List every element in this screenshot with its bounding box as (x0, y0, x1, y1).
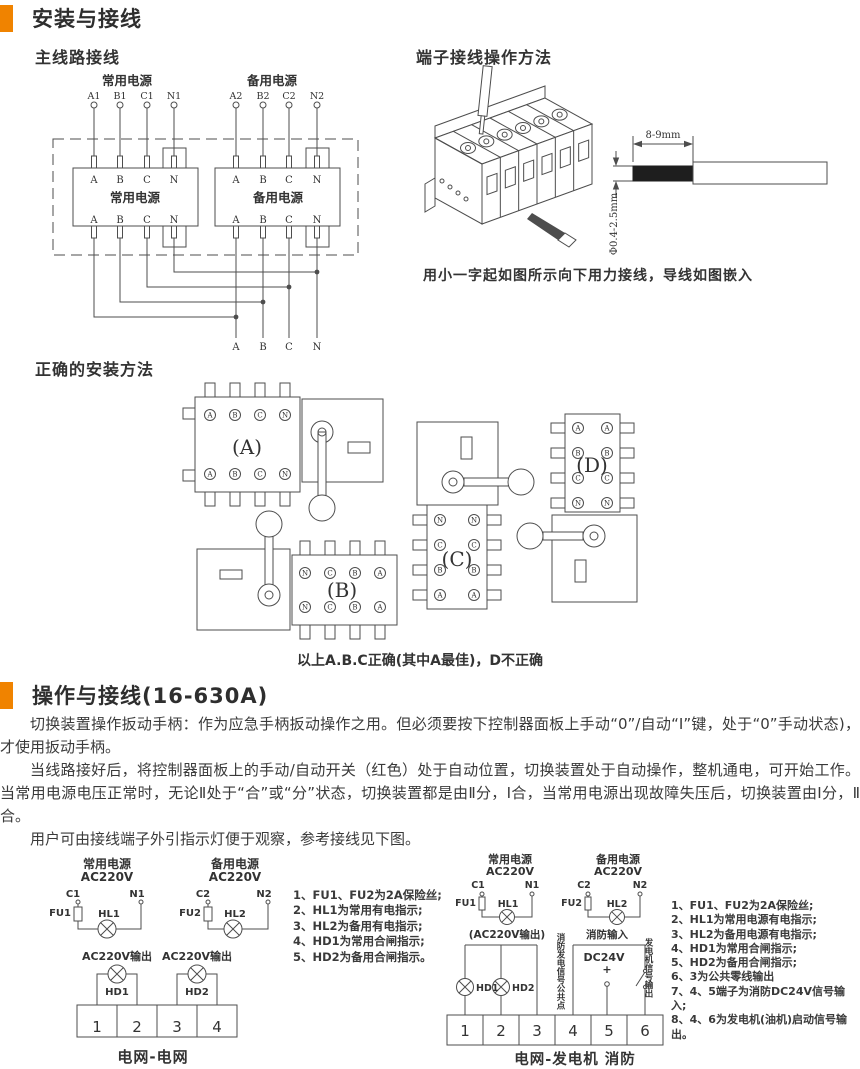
normal-power-label: 常用电源 (488, 852, 532, 866)
paragraph: 切换装置操作扳动手柄：作为应急手柄扳动操作之用。但必须要按下控制器面板上手动“0… (0, 713, 860, 759)
svg-text:C1: C1 (66, 889, 80, 900)
svg-text:B: B (259, 175, 266, 186)
normal-power-label: 常用电源 (102, 73, 153, 88)
svg-text:B1: B1 (113, 91, 126, 102)
note-line: 2、HL1为常用有电指示; (293, 903, 442, 918)
note-line: 5、HD2为备用合闸指示; (671, 956, 860, 970)
svg-text:N: N (604, 500, 610, 508)
diagram-caption: 电网-电网 (117, 1048, 188, 1066)
svg-text:C2: C2 (196, 889, 210, 900)
note-line: 2、HL1为常用电源有电指示; (671, 913, 860, 927)
normal-box-label: 常用电源 (110, 190, 161, 205)
svg-text:3: 3 (532, 1022, 542, 1040)
backup-box-label: 备用电源 (252, 190, 304, 205)
variant-d: A B C N A B C N (D) (517, 414, 637, 602)
handle-ball (309, 495, 335, 521)
ac-output-label: AC220V输出 (162, 949, 232, 963)
svg-text:B: B (116, 215, 123, 226)
svg-text:A: A (206, 471, 213, 479)
installation-caption: 以上A.B.C正确(其中A最佳)，D不正确 (170, 650, 670, 670)
variant-c: N C B A N C B A (C) (413, 422, 534, 609)
indicator-circuit-backup: C2 N2 FU2 HL2 (179, 889, 272, 938)
svg-text:A: A (231, 342, 240, 353)
svg-text:B: B (232, 471, 237, 479)
svg-text:A1: A1 (87, 91, 101, 102)
fire-input-label: 消防输入 (586, 928, 628, 941)
svg-text:N: N (313, 175, 322, 186)
wire-insulation (693, 162, 827, 184)
terminal-method-caption: 用小一字起如图所示向下用力接线，导线如图嵌入 (423, 265, 753, 285)
variant-a-label: (A) (232, 435, 262, 459)
note-line: 1、FU1、FU2为2A保险丝; (671, 899, 860, 913)
grid-grid-diagram: 常用电源 AC220V 备用电源 AC220V C1 N1 FU1 HL1 C2… (25, 845, 275, 1069)
top-terminal-labels: A1 B1 C1 N1 A2 B2 C2 N2 (87, 91, 325, 102)
closing-indicators: HD1 HD2 (97, 965, 217, 1005)
installation-variants-diagram: A B C N A B C N (A) (170, 380, 670, 646)
svg-text:C: C (285, 175, 293, 186)
svg-text:HD1: HD1 (476, 983, 498, 994)
svg-text:C: C (143, 175, 151, 186)
svg-text:N: N (170, 175, 179, 186)
fire-common-label: 消防发电信号公共点 (555, 932, 566, 1010)
svg-text:N1: N1 (167, 91, 181, 102)
handle-shaft (543, 532, 583, 540)
voltage-label: AC220V (594, 865, 643, 878)
note-line: 8、4、6为发电机(油机)启动信号输出。 (671, 1013, 860, 1042)
terminal-method-title: 端子接线操作方法 (416, 44, 552, 68)
svg-text:5: 5 (604, 1022, 614, 1040)
variant-b-label: (B) (327, 578, 357, 602)
note-line: 3、HL2为备用有电指示; (293, 919, 442, 934)
svg-text:N: N (471, 517, 477, 525)
stripped-conductor (633, 166, 693, 181)
output-bus-wires (94, 238, 319, 338)
svg-text:C: C (327, 570, 332, 578)
svg-text:A: A (206, 412, 213, 420)
svg-text:N: N (282, 471, 288, 479)
note-line: 4、HD1为常用合闸指示; (293, 934, 442, 949)
note-line: 3、HL2为备用电源有电指示; (671, 928, 860, 942)
indicator-circuit-backup: C2 N2 FU2 HL2 (561, 880, 647, 925)
indicator-circuit-normal: C1 N1 FU1 HL1 (49, 889, 145, 938)
section-header-install: 安装与接线 (0, 3, 142, 33)
orange-marker-icon (0, 682, 13, 709)
manual-page: 安装与接线 主线路接线 端子接线操作方法 常用电源 备用电源 A1 B1 C1 … (0, 0, 860, 1069)
note-line: 4、HD1为常用合闸指示; (671, 942, 860, 956)
svg-text:A: A (231, 175, 240, 186)
svg-text:N: N (282, 412, 288, 420)
svg-text:B2: B2 (256, 91, 269, 102)
handle-shaft (318, 432, 326, 496)
svg-text:HL2: HL2 (224, 909, 246, 920)
svg-text:6: 6 (640, 1022, 650, 1040)
svg-text:1: 1 (92, 1018, 102, 1036)
diagram-caption: 电网-发电机 消防 (514, 1050, 636, 1068)
svg-text:3: 3 (172, 1018, 182, 1036)
note-line: 7、4、5端子为消防DC24V信号输入; (671, 985, 860, 1014)
svg-text:2: 2 (496, 1022, 506, 1040)
svg-text:B: B (116, 175, 123, 186)
section-title: 操作与接线(16-630A) (32, 680, 268, 710)
svg-text:C: C (257, 412, 262, 420)
notes-grid-generator: 1、FU1、FU2为2A保险丝; 2、HL1为常用电源有电指示; 3、HL2为备… (671, 899, 860, 1042)
wire-diameter-dim: Φ0.4-2.5mm (609, 192, 620, 255)
incoming-lines (91, 102, 320, 168)
svg-text:HD2: HD2 (512, 983, 534, 994)
svg-text:N: N (313, 215, 322, 226)
svg-text:A: A (231, 215, 240, 226)
svg-text:1: 1 (460, 1022, 470, 1040)
svg-text:A: A (470, 592, 477, 600)
svg-text:N: N (437, 517, 443, 525)
svg-text:A: A (603, 425, 610, 433)
svg-text:4: 4 (568, 1022, 578, 1040)
svg-text:A: A (574, 425, 581, 433)
svg-text:A: A (436, 592, 443, 600)
svg-text:N: N (302, 570, 308, 578)
handle-shaft (464, 478, 509, 486)
svg-text:C1: C1 (140, 91, 153, 102)
svg-text:C: C (327, 604, 332, 612)
svg-text:2: 2 (132, 1018, 142, 1036)
svg-text:HD2: HD2 (185, 987, 209, 998)
paragraph: 当线路接好后，将控制器面板上的手动/自动开关（红色）处于自动位置，切换装置处于自… (0, 759, 860, 828)
note-line: 1、FU1、FU2为2A保险丝; (293, 888, 442, 903)
svg-text:A: A (89, 215, 98, 226)
voltage-label: AC220V (81, 870, 134, 884)
svg-text:C: C (285, 215, 293, 226)
installation-title: 正确的安装方法 (35, 356, 154, 380)
output-indicator-wires: HD1 HD2 (457, 945, 538, 1015)
variant-b: N C B A N C B A (B) (197, 511, 397, 639)
svg-text:FU1: FU1 (49, 908, 71, 919)
notes-grid-grid: 1、FU1、FU2为2A保险丝; 2、HL1为常用有电指示; 3、HL2为备用有… (293, 888, 442, 965)
section-title: 安装与接线 (32, 3, 142, 33)
svg-text:HD1: HD1 (105, 987, 129, 998)
svg-text:C2: C2 (577, 880, 591, 891)
inserted-wire (527, 213, 565, 240)
note-line: 5、HD2为备用合闸指示。 (293, 950, 442, 965)
svg-text:C: C (257, 471, 262, 479)
backup-power-label: 备用电源 (246, 73, 298, 88)
voltage-label: AC220V (209, 870, 262, 884)
orange-marker-icon (0, 5, 13, 32)
variant-d-label: (D) (576, 453, 608, 477)
enclosure-dashed-outline (53, 139, 358, 255)
svg-text:4: 4 (212, 1018, 222, 1036)
backup-power-label: 备用电源 (595, 852, 640, 866)
svg-text:N1: N1 (129, 889, 144, 900)
svg-text:HL1: HL1 (98, 909, 120, 920)
section-header-operate: 操作与接线(16-630A) (0, 680, 268, 710)
output-phase-labels: A B C N (231, 342, 321, 353)
strip-length-dim: 8-9mm (645, 130, 681, 141)
voltage-label: AC220V (486, 865, 535, 878)
svg-text:A2: A2 (229, 91, 243, 102)
svg-text:C: C (143, 215, 151, 226)
terminal-block-drawing (425, 66, 592, 247)
terminal-method-diagram: 8-9mm Φ0.4-2.5mm (420, 66, 852, 262)
handle-ball (256, 511, 282, 537)
switch-bodies: A B C N A B C N A B C N A B C N 常用电源 备用电… (73, 148, 340, 247)
svg-text:N: N (575, 500, 581, 508)
svg-text:C1: C1 (471, 880, 485, 891)
svg-text:FU1: FU1 (455, 898, 476, 909)
normal-power-label: 常用电源 (83, 856, 131, 871)
svg-text:C2: C2 (282, 91, 295, 102)
ac-output-label: (AC220V输出) (469, 928, 545, 941)
wire-strip-dimension-drawing: 8-9mm Φ0.4-2.5mm (609, 130, 827, 255)
variant-a: A B C N A B C N (A) (183, 383, 383, 521)
svg-text:N2: N2 (633, 880, 648, 891)
handle-ball (508, 469, 534, 495)
main-wiring-diagram: 常用电源 备用电源 A1 B1 C1 N1 A2 B2 C2 N2 (35, 66, 375, 358)
main-wiring-title: 主线路接线 (35, 44, 120, 68)
svg-text:HL2: HL2 (607, 899, 628, 910)
svg-text:B: B (259, 215, 266, 226)
plus-sign: + (602, 963, 611, 976)
indicator-circuit-normal: C1 N1 FU1 HL1 (455, 880, 539, 925)
svg-text:N2: N2 (310, 91, 324, 102)
svg-text:B: B (259, 342, 266, 353)
svg-text:N: N (313, 342, 322, 353)
svg-text:B: B (232, 412, 237, 420)
svg-text:N1: N1 (525, 880, 540, 891)
svg-text:B: B (352, 604, 357, 612)
svg-text:B: B (352, 570, 357, 578)
svg-text:N2: N2 (256, 889, 271, 900)
backup-power-label: 备用电源 (210, 856, 259, 871)
handle-ball (517, 523, 543, 549)
svg-text:N: N (302, 604, 308, 612)
terminal-strip: 1 2 3 4 5 6 (447, 1015, 663, 1045)
terminal-strip: 1 2 3 4 (77, 1005, 237, 1037)
variant-c-label: (C) (442, 547, 473, 571)
ac-output-label: AC220V输出 (82, 949, 152, 963)
grid-generator-diagram: 常用电源 AC220V 备用电源 AC220V C1 N1 FU1 HL1 C2… (432, 845, 672, 1069)
din-foot (425, 178, 435, 212)
svg-text:C: C (285, 342, 293, 353)
svg-text:A: A (89, 175, 98, 186)
svg-text:FU2: FU2 (561, 898, 582, 909)
svg-text:FU2: FU2 (179, 908, 201, 919)
svg-text:A: A (376, 570, 383, 578)
fire-input-wires: DC24V + (573, 945, 647, 1015)
svg-text:A: A (376, 604, 383, 612)
note-line: 6、3为公共零线输出 (671, 970, 860, 984)
svg-text:N: N (170, 215, 179, 226)
operation-paragraphs: 切换装置操作扳动手柄：作为应急手柄扳动操作之用。但必须要按下控制器面板上手动“0… (0, 713, 860, 851)
svg-text:HL1: HL1 (498, 899, 519, 910)
